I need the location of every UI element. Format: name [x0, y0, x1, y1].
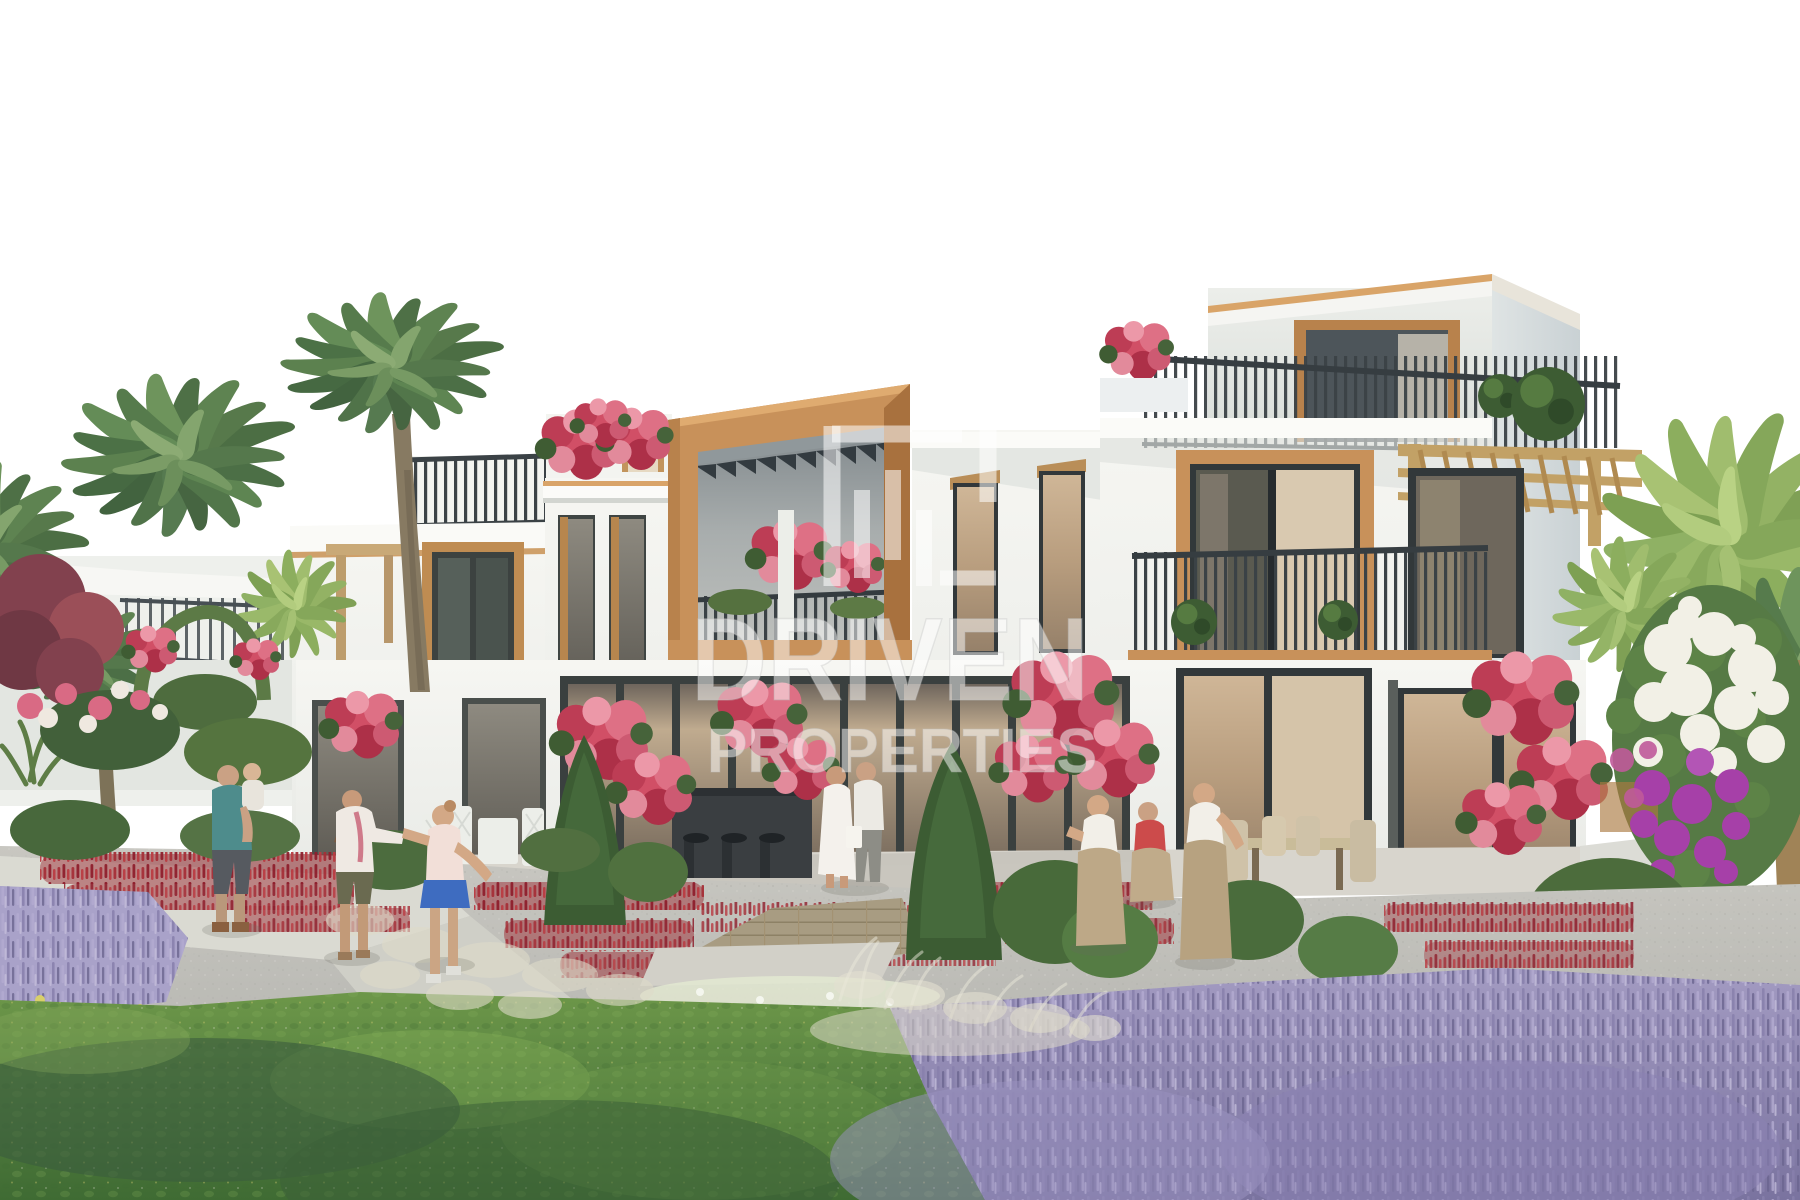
svg-text:PROPERTIES: PROPERTIES: [707, 717, 1097, 786]
svg-text:DRIVEN: DRIVEN: [691, 594, 1089, 726]
